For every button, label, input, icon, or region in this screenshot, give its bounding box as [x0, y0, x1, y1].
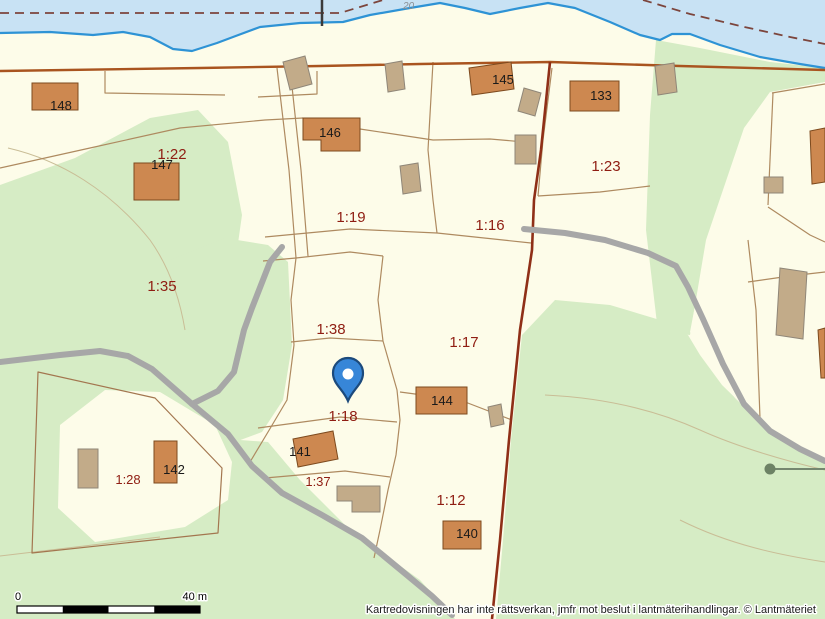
building-label-146: 146 [319, 125, 341, 140]
parcel-label-1-18: 1:18 [328, 408, 357, 425]
parcel-label-1-17: 1:17 [449, 334, 478, 351]
building-label-144: 144 [431, 393, 453, 408]
parcel-label-1-28: 1:28 [115, 472, 140, 487]
scale-bar-segment [154, 606, 200, 613]
building-label-133: 133 [590, 88, 612, 103]
parcel-label-1-19: 1:19 [336, 209, 365, 226]
map-viewport: 20 148 147 146 145 133 144 141 142 140 1… [0, 0, 825, 619]
parcel-label-1-35: 1:35 [147, 278, 176, 295]
parcel-label-1-37: 1:37 [305, 474, 330, 489]
scale-end-label: 40 m [183, 591, 207, 603]
building-label-145: 145 [492, 72, 514, 87]
building-label-140: 140 [456, 526, 478, 541]
parcel-label-1-16: 1:16 [475, 217, 504, 234]
attribution-text: Kartredovisningen har inte rättsverkan, … [366, 604, 816, 616]
parcel-label-1-23: 1:23 [591, 158, 620, 175]
building-label-148: 148 [50, 98, 72, 113]
building-label-142: 142 [163, 462, 185, 477]
map-canvas[interactable]: 20 148 147 146 145 133 144 141 142 140 1… [0, 0, 825, 619]
pin-center-dot [343, 369, 354, 380]
building-label-141: 141 [289, 444, 311, 459]
parcel-label-1-12: 1:12 [436, 492, 465, 509]
parcel-label-1-22: 1:22 [157, 146, 186, 163]
parcel-label-1-38: 1:38 [316, 321, 345, 338]
pole-dot [765, 464, 776, 475]
depth-label: 20 [402, 1, 415, 12]
scale-start-label: 0 [15, 591, 21, 603]
scale-bar-segment [63, 606, 109, 613]
